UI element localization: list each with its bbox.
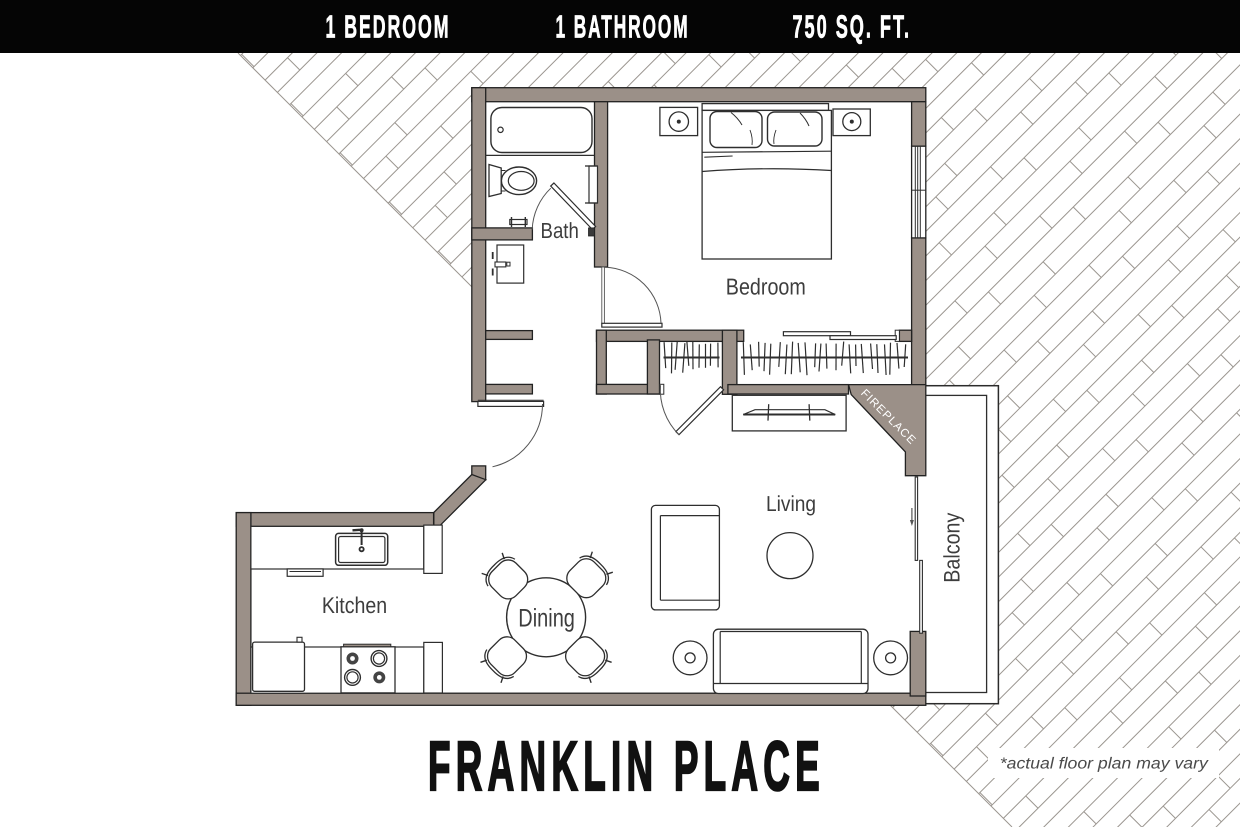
svg-text:Living: Living [766,491,816,516]
svg-text:Balcony: Balcony [940,512,965,583]
svg-text:1 BEDROOM: 1 BEDROOM [326,9,451,45]
svg-text:Bedroom: Bedroom [726,274,806,300]
svg-text:FRANKLIN PLACE: FRANKLIN PLACE [428,727,825,805]
svg-text:750 SQ. FT.: 750 SQ. FT. [793,9,912,45]
svg-text:Bath: Bath [541,218,579,243]
svg-text:*actual floor plan may vary: *actual floor plan may vary [1000,755,1209,772]
svg-text:1 BATHROOM: 1 BATHROOM [556,9,690,45]
svg-text:Dining: Dining [518,604,575,632]
svg-text:Kitchen: Kitchen [322,592,387,618]
